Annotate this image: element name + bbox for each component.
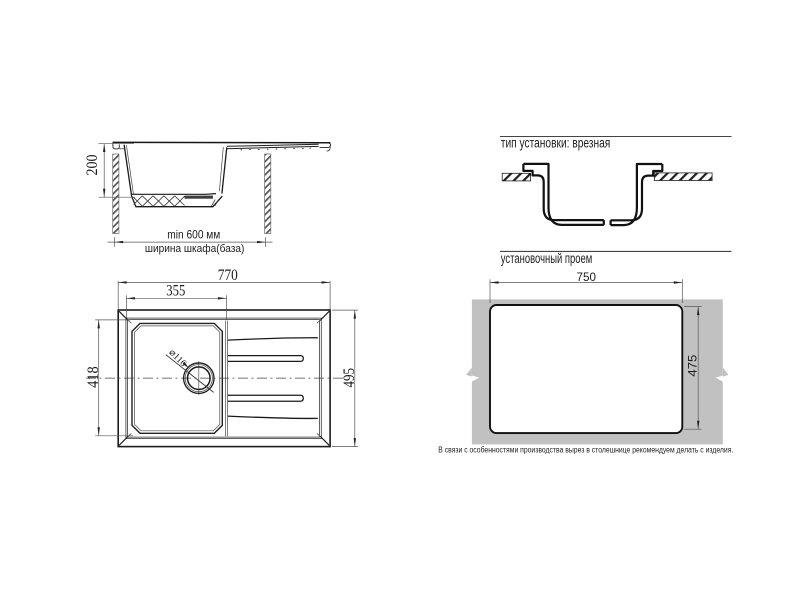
svg-text:ширина шкафа(база): ширина шкафа(база) — [145, 243, 245, 255]
svg-text:тип установки: врезная: тип установки: врезная — [501, 135, 611, 150]
svg-text:495: 495 — [341, 368, 358, 388]
svg-text:min 600 мм: min 600 мм — [167, 228, 220, 242]
svg-text:750: 750 — [577, 270, 597, 284]
svg-text:В связи с особенностями произв: В связи с особенностями производства выр… — [438, 446, 733, 455]
svg-text:418: 418 — [85, 366, 102, 388]
svg-text:установочный проем: установочный проем — [501, 251, 593, 266]
svg-text:200: 200 — [84, 154, 101, 175]
svg-text:475: 475 — [685, 354, 699, 376]
svg-text:355: 355 — [166, 282, 185, 299]
svg-text:770: 770 — [218, 267, 238, 284]
